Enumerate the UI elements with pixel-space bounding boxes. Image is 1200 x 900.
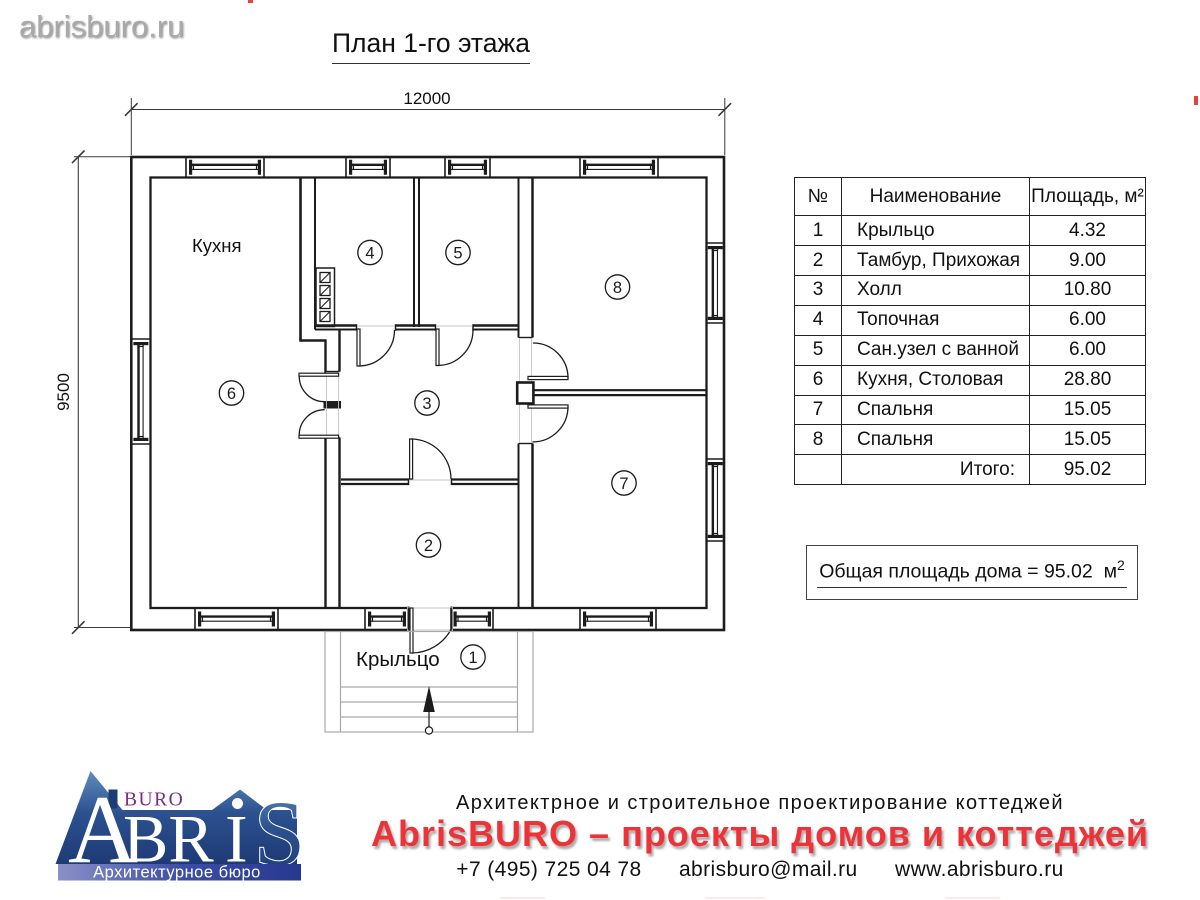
- svg-text:5: 5: [453, 244, 462, 262]
- svg-text:7: 7: [619, 475, 628, 493]
- svg-text:1: 1: [468, 649, 477, 667]
- svg-text:4: 4: [365, 244, 374, 262]
- svg-text:12000: 12000: [403, 89, 450, 108]
- svg-text:Кухня: Кухня: [192, 235, 242, 256]
- svg-text:9500: 9500: [54, 373, 73, 411]
- svg-text:3: 3: [422, 395, 431, 413]
- svg-text:8: 8: [613, 279, 622, 297]
- svg-text:Крыльцо: Крыльцо: [356, 648, 440, 671]
- svg-text:2: 2: [424, 537, 433, 555]
- svg-text:6: 6: [227, 385, 236, 403]
- svg-text:Архитектурное бюро: Архитектурное бюро: [93, 864, 261, 882]
